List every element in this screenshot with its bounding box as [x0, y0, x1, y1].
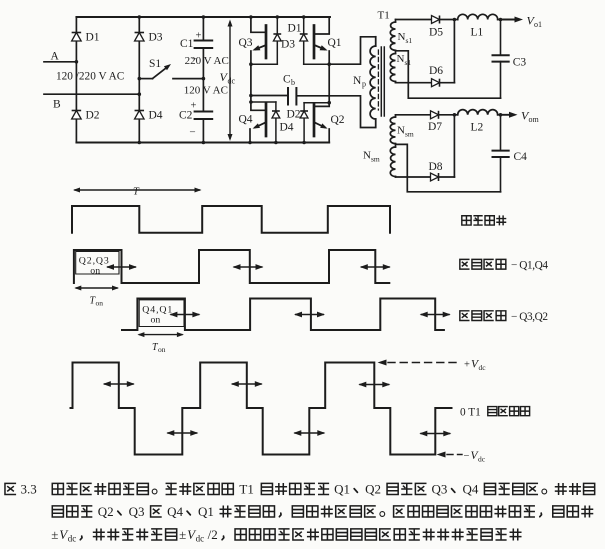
svg-text:Q3: Q3 — [239, 37, 253, 49]
svg-text:sm: sm — [371, 155, 380, 164]
svg-text:− Q1,Q4: − Q1,Q4 — [511, 260, 548, 272]
svg-text:Q2: Q2 — [331, 114, 345, 126]
svg-text:C4: C4 — [514, 151, 528, 163]
svg-text:D1: D1 — [86, 32, 100, 44]
svg-text:D8: D8 — [429, 161, 443, 173]
svg-text:120 V AC: 120 V AC — [184, 85, 228, 97]
svg-text:+: + — [464, 359, 470, 370]
svg-text:N: N — [397, 125, 405, 137]
svg-text:N: N — [363, 150, 371, 162]
svg-text:on: on — [90, 265, 100, 276]
svg-text:p: p — [362, 80, 366, 89]
svg-text:dc: dc — [478, 454, 486, 463]
svg-text:120 /220 V AC: 120 /220 V AC — [56, 71, 124, 83]
svg-text:L1: L1 — [471, 27, 484, 39]
svg-text:C3: C3 — [513, 57, 527, 69]
svg-text:C: C — [283, 74, 291, 86]
svg-text:T1: T1 — [378, 10, 390, 22]
svg-text:D5: D5 — [429, 27, 443, 39]
svg-text:S1: S1 — [149, 58, 161, 70]
svg-text:D2: D2 — [86, 110, 100, 122]
svg-text:N: N — [397, 53, 405, 65]
svg-text:− Q3,Q2: − Q3,Q2 — [511, 311, 548, 323]
svg-text:dc: dc — [196, 533, 205, 543]
svg-text:D6: D6 — [429, 65, 443, 77]
svg-text:Q1: Q1 — [328, 37, 342, 49]
svg-text:±: ± — [179, 527, 186, 542]
svg-text:L2: L2 — [471, 122, 484, 134]
svg-text:D3: D3 — [281, 39, 295, 51]
svg-text:Q1: Q1 — [334, 481, 350, 496]
svg-text:220 V AC: 220 V AC — [185, 55, 229, 67]
svg-text:on: on — [151, 315, 161, 326]
svg-text:D7: D7 — [428, 121, 442, 133]
svg-text:Q3: Q3 — [432, 481, 448, 496]
svg-text:Q4: Q4 — [167, 504, 183, 519]
svg-text:s1: s1 — [406, 36, 413, 45]
svg-text:dc: dc — [479, 363, 487, 372]
svg-text:om: om — [529, 115, 540, 124]
svg-text:T1: T1 — [239, 481, 253, 496]
svg-text:3.3: 3.3 — [21, 481, 37, 496]
svg-text:D4: D4 — [280, 122, 294, 134]
svg-text:B: B — [53, 99, 61, 111]
svg-text:+: + — [191, 101, 197, 112]
svg-text:D1: D1 — [288, 23, 302, 35]
svg-text:Q4: Q4 — [239, 114, 253, 126]
svg-text:Q1: Q1 — [198, 504, 214, 519]
svg-text:+: + — [196, 31, 202, 42]
svg-text:Q2: Q2 — [365, 481, 381, 496]
svg-text:N: N — [353, 75, 362, 87]
svg-text:A: A — [51, 51, 60, 63]
svg-text:Q3: Q3 — [129, 504, 145, 519]
svg-text:Q2: Q2 — [98, 504, 114, 519]
svg-text:/2: /2 — [208, 527, 218, 542]
svg-text:−: − — [464, 451, 470, 462]
svg-text:D2: D2 — [287, 109, 301, 121]
svg-text:0 T1: 0 T1 — [460, 406, 481, 418]
svg-text:dc: dc — [228, 77, 236, 86]
svg-text:on: on — [96, 299, 104, 308]
svg-text:_: _ — [189, 123, 196, 134]
svg-text:C1: C1 — [180, 38, 194, 50]
svg-text:o1: o1 — [534, 20, 542, 29]
svg-text:D3: D3 — [149, 32, 163, 44]
svg-text:D4: D4 — [149, 110, 163, 122]
svg-text:sm: sm — [405, 130, 414, 139]
svg-text:on: on — [158, 345, 166, 354]
svg-text:dc: dc — [68, 533, 77, 543]
svg-text:b: b — [291, 78, 295, 87]
svg-text:Q4: Q4 — [462, 481, 478, 496]
svg-text:±: ± — [51, 527, 58, 542]
svg-text:N: N — [398, 31, 406, 43]
